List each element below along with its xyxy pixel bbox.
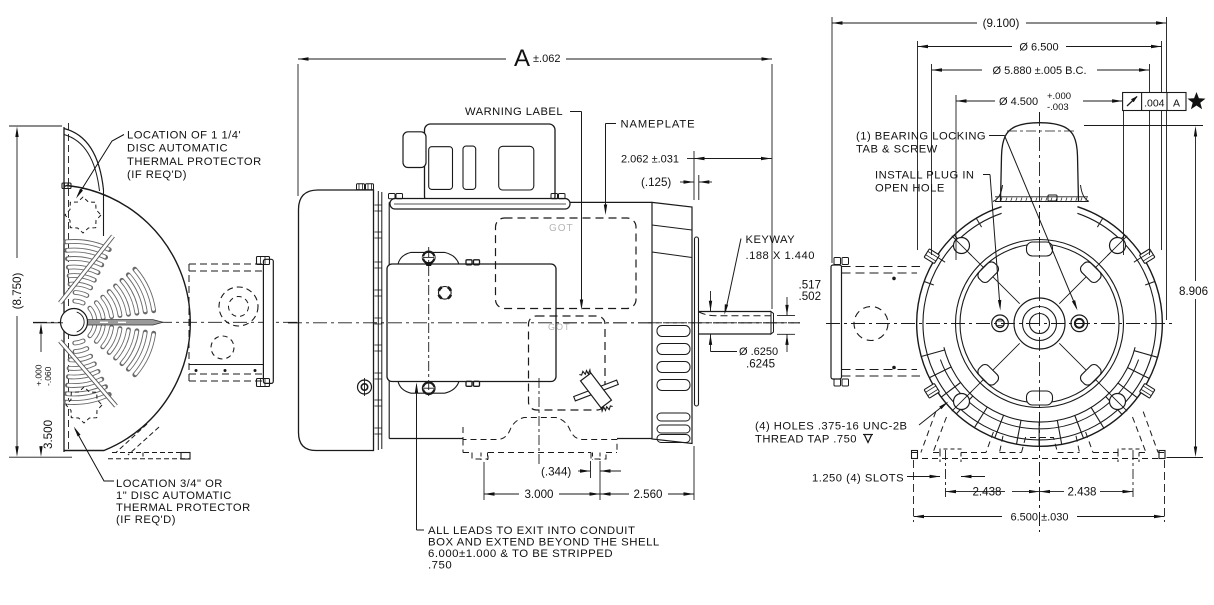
svg-text:(1) BEARING LOCKING: (1) BEARING LOCKING [856, 131, 986, 143]
svg-text:.502: .502 [799, 290, 822, 303]
svg-text:+.000: +.000 [1047, 91, 1071, 102]
svg-text:.6245: .6245 [746, 358, 775, 371]
svg-text:(4) HOLES .375-16 UNC-2B: (4) HOLES .375-16 UNC-2B [755, 421, 908, 433]
svg-text:-.060: -.060 [43, 366, 53, 386]
svg-text:-.003: -.003 [1047, 102, 1069, 113]
svg-text:A: A [1173, 98, 1180, 110]
svg-text:3.000: 3.000 [524, 488, 553, 501]
svg-text:THREAD TAP .750: THREAD TAP .750 [755, 434, 857, 446]
svg-text:Ø 4.500: Ø 4.500 [999, 96, 1038, 108]
svg-text:(IF REQ'D): (IF REQ'D) [116, 514, 176, 526]
svg-text:(.344): (.344) [541, 466, 571, 479]
svg-text:OPEN HOLE: OPEN HOLE [875, 183, 945, 195]
svg-text:.004: .004 [1144, 98, 1165, 110]
svg-text:ALL LEADS TO EXIT INTO CONDUIT: ALL LEADS TO EXIT INTO CONDUIT [428, 525, 635, 537]
svg-text:THERMAL PROTECTOR: THERMAL PROTECTOR [127, 156, 262, 168]
svg-text:2.062 ±.031: 2.062 ±.031 [621, 154, 679, 166]
svg-text:INSTALL PLUG IN: INSTALL PLUG IN [875, 170, 975, 182]
svg-text:LOCATION OF 1 1/4': LOCATION OF 1 1/4' [127, 130, 241, 142]
svg-text:Ø .6250: Ø .6250 [739, 346, 778, 358]
svg-text:2.438: 2.438 [972, 486, 1001, 499]
svg-text:2.560: 2.560 [633, 488, 662, 501]
svg-text:A: A [514, 45, 530, 72]
svg-text:GOT: GOT [548, 322, 571, 332]
svg-text:1" DISC AUTOMATIC: 1" DISC AUTOMATIC [116, 490, 232, 502]
svg-text:+.000: +.000 [34, 364, 44, 386]
svg-text:.188 X 1.440: .188 X 1.440 [746, 250, 815, 262]
svg-text:KEYWAY: KEYWAY [746, 234, 796, 246]
svg-text:THERMAL PROTECTOR: THERMAL PROTECTOR [116, 502, 251, 514]
svg-text:BOX AND EXTEND BEYOND THE SHEL: BOX AND EXTEND BEYOND THE SHELL [428, 537, 660, 549]
svg-text:±.062: ±.062 [533, 53, 560, 65]
svg-text:(.125): (.125) [641, 176, 671, 189]
svg-text:.750: .750 [428, 560, 452, 572]
svg-text:DISC AUTOMATIC: DISC AUTOMATIC [127, 143, 228, 155]
svg-text:(IF REQ'D): (IF REQ'D) [127, 169, 187, 181]
svg-text:LOCATION 3/4" OR: LOCATION 3/4" OR [116, 478, 223, 490]
svg-text:GOT: GOT [549, 223, 574, 234]
svg-text:(9.100): (9.100) [983, 17, 1020, 30]
svg-text:6.500 ±.030: 6.500 ±.030 [1010, 512, 1068, 524]
svg-text:8.906: 8.906 [1179, 285, 1208, 298]
svg-text:NAMEPLATE: NAMEPLATE [621, 119, 696, 131]
svg-text:2.438: 2.438 [1067, 486, 1096, 499]
svg-text:1.250 (4) SLOTS: 1.250 (4) SLOTS [812, 473, 904, 485]
svg-text:TAB & SCREW: TAB & SCREW [856, 144, 938, 156]
svg-text:3.500: 3.500 [42, 420, 55, 449]
svg-text:Ø 6.500: Ø 6.500 [1019, 42, 1058, 54]
svg-text:6.000±1.000 & TO BE STRIPPED: 6.000±1.000 & TO BE STRIPPED [428, 548, 613, 560]
svg-text:(8.750): (8.750) [11, 272, 24, 309]
svg-text:Ø 5.880 ±.005 B.C.: Ø 5.880 ±.005 B.C. [992, 65, 1086, 77]
svg-text:WARNING LABEL: WARNING LABEL [465, 106, 563, 118]
